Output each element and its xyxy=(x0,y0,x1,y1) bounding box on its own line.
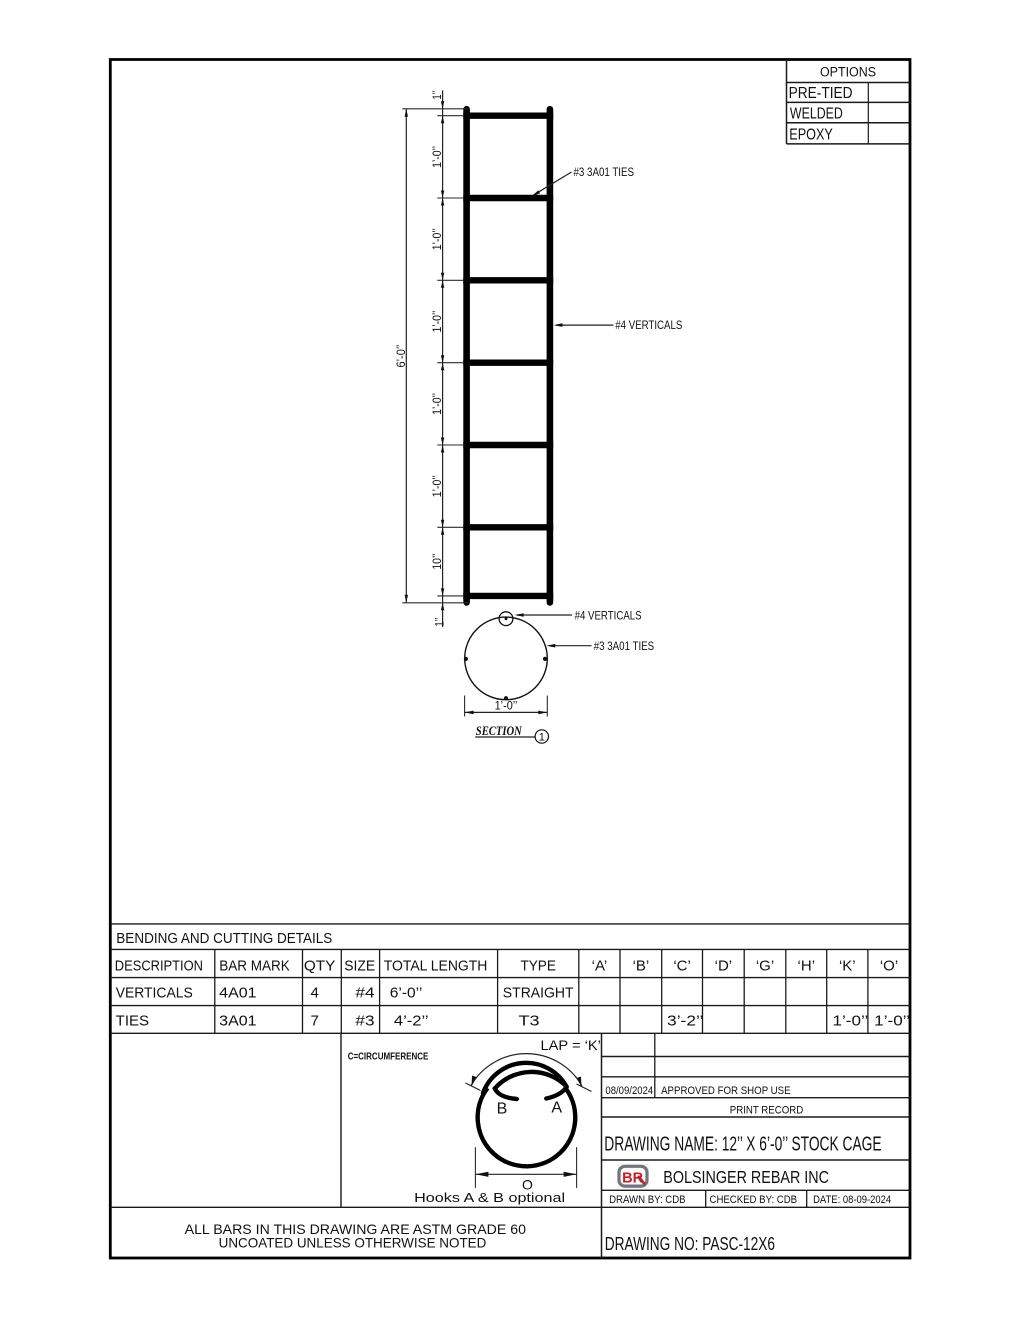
svg-text:SIZE: SIZE xyxy=(344,958,375,975)
svg-text:1’-0’’: 1’-0’’ xyxy=(495,700,518,712)
svg-text:7: 7 xyxy=(311,1012,319,1029)
svg-text:#4: #4 xyxy=(355,985,374,1002)
svg-text:‘H’: ‘H’ xyxy=(798,958,816,975)
svg-text:BOLSINGER REBAR INC: BOLSINGER REBAR INC xyxy=(663,1167,829,1187)
svg-text:DRAWING NO: PASC-12X6: DRAWING NO: PASC-12X6 xyxy=(605,1234,775,1254)
svg-text:‘D’: ‘D’ xyxy=(715,958,733,975)
svg-text:A: A xyxy=(551,1100,562,1117)
svg-text:3’-2’’: 3’-2’’ xyxy=(667,1012,703,1029)
svg-text:VERTICALS: VERTICALS xyxy=(116,985,193,1002)
svg-text:3A01: 3A01 xyxy=(219,1012,256,1029)
svg-text:STRAIGHT: STRAIGHT xyxy=(503,985,574,1002)
svg-text:CHECKED BY: CDB: CHECKED BY: CDB xyxy=(710,1194,798,1206)
svg-text:OPTIONS: OPTIONS xyxy=(820,65,876,80)
svg-text:4: 4 xyxy=(311,985,319,1002)
svg-text:#4 VERTICALS: #4 VERTICALS xyxy=(615,318,682,332)
svg-text:SECTION: SECTION xyxy=(476,724,523,738)
svg-text:BENDING AND CUTTING DETAILS: BENDING AND CUTTING DETAILS xyxy=(116,931,332,947)
svg-text:APPROVED FOR SHOP USE: APPROVED FOR SHOP USE xyxy=(661,1085,791,1097)
svg-text:08/09/2024: 08/09/2024 xyxy=(605,1085,653,1097)
svg-text:TYPE: TYPE xyxy=(520,958,556,975)
svg-text:6’-0’’: 6’-0’’ xyxy=(390,985,423,1002)
svg-text:1’-0’’: 1’-0’’ xyxy=(432,228,444,250)
svg-text:DRAWING NAME: 12’’ X 6’-0’’ ST: DRAWING NAME: 12’’ X 6’-0’’ STOCK CAGE xyxy=(604,1134,881,1156)
svg-text:1’-0’’: 1’-0’’ xyxy=(432,475,444,497)
svg-text:‘K’: ‘K’ xyxy=(839,958,856,975)
svg-text:T3: T3 xyxy=(519,1012,540,1029)
svg-text:BAR MARK: BAR MARK xyxy=(219,958,290,975)
svg-text:‘A’: ‘A’ xyxy=(592,958,608,975)
svg-text:#4 VERTICALS: #4 VERTICALS xyxy=(575,608,642,622)
svg-text:#3 3A01 TIES: #3 3A01 TIES xyxy=(574,165,635,179)
svg-text:DRAWN BY: CDB: DRAWN BY: CDB xyxy=(609,1194,686,1206)
svg-text:‘O’: ‘O’ xyxy=(880,958,898,975)
svg-text:1’-0’’: 1’-0’’ xyxy=(833,1012,869,1029)
svg-text:EPOXY: EPOXY xyxy=(789,126,833,143)
svg-text:Hooks A & B optional: Hooks A & B optional xyxy=(414,1190,565,1205)
svg-text:WELDED: WELDED xyxy=(790,105,843,122)
svg-text:DESCRIPTION: DESCRIPTION xyxy=(115,958,203,975)
svg-text:1’’: 1’’ xyxy=(435,618,447,627)
svg-text:QTY: QTY xyxy=(304,958,336,975)
svg-text:LAP = ‘K’: LAP = ‘K’ xyxy=(541,1037,601,1053)
svg-text:1’-0’’: 1’-0’’ xyxy=(432,146,444,168)
svg-text:10’’: 10’’ xyxy=(432,554,444,570)
svg-text:PRINT RECORD: PRINT RECORD xyxy=(730,1105,804,1117)
svg-text:1’-0’’: 1’-0’’ xyxy=(432,311,444,333)
svg-text:1’-0’’: 1’-0’’ xyxy=(432,393,444,415)
svg-text:4A01: 4A01 xyxy=(219,985,256,1002)
svg-text:C=CIRCUMFERENCE: C=CIRCUMFERENCE xyxy=(348,1052,429,1063)
svg-text:6’-0’’: 6’-0’’ xyxy=(396,345,408,368)
svg-text:PRE-TIED: PRE-TIED xyxy=(789,85,853,102)
svg-text:TOTAL LENGTH: TOTAL LENGTH xyxy=(384,958,488,975)
svg-text:4’-2’’: 4’-2’’ xyxy=(394,1012,429,1029)
svg-text:#3: #3 xyxy=(355,1012,374,1029)
svg-text:‘G’: ‘G’ xyxy=(756,958,774,975)
svg-text:DATE: 08-09-2024: DATE: 08-09-2024 xyxy=(813,1194,891,1206)
svg-text:‘B’: ‘B’ xyxy=(633,958,650,975)
svg-text:#3 3A01 TIES: #3 3A01 TIES xyxy=(594,639,655,653)
svg-text:B: B xyxy=(497,1101,508,1118)
svg-text:1’’: 1’’ xyxy=(432,91,444,100)
svg-text:UNCOATED UNLESS OTHERWISE NOTE: UNCOATED UNLESS OTHERWISE NOTED xyxy=(219,1236,487,1251)
svg-text:1’-0’’: 1’-0’’ xyxy=(874,1012,910,1029)
svg-text:TIES: TIES xyxy=(116,1012,149,1029)
svg-text:‘C’: ‘C’ xyxy=(673,958,691,975)
svg-text:1: 1 xyxy=(539,732,545,744)
